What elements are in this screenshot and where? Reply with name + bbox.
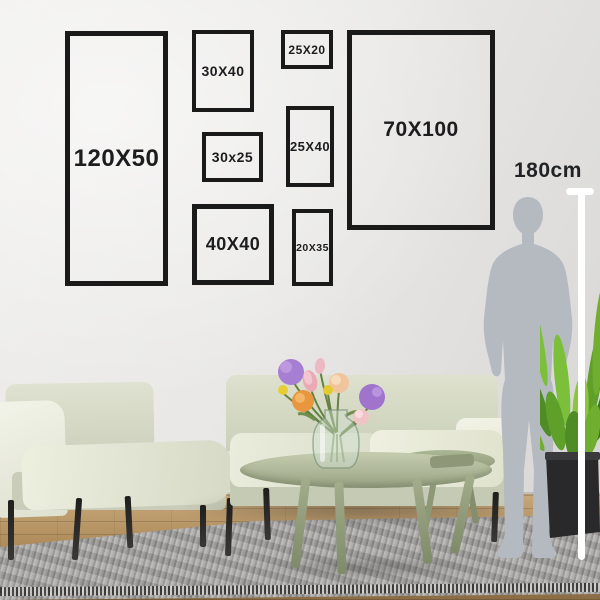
frame-size-label: 25X40 — [290, 139, 330, 154]
coffee-table-shadow — [250, 556, 490, 578]
size-frame-30x40: 30X40 — [192, 30, 254, 112]
flower-vase-arrangement — [255, 350, 400, 475]
armchair-leg — [8, 500, 14, 560]
size-frame-120x50: 120X50 — [65, 31, 168, 286]
frame-size-label: 40X40 — [206, 234, 261, 255]
size-frame-25x20: 25X20 — [281, 30, 333, 69]
frame-size-label: 30x25 — [212, 149, 253, 165]
size-frame-30x25: 30x25 — [202, 132, 263, 182]
frame-size-label: 30X40 — [202, 63, 245, 79]
size-frame-40x40: 40X40 — [192, 204, 274, 285]
sofa-leg — [200, 505, 206, 547]
size-frame-20x35: 20X35 — [292, 209, 333, 286]
height-label: 180cm — [514, 159, 600, 183]
frame-size-label: 25X20 — [288, 43, 325, 57]
frame-size-label: 120X50 — [74, 145, 160, 173]
height-ruler-line — [578, 190, 585, 560]
frame-size-label: 20X35 — [296, 242, 329, 254]
size-guide-scene: 120X50 30X40 25X20 30x25 25X40 70X100 40… — [0, 0, 600, 600]
plant-pot — [545, 452, 600, 538]
size-frame-25x40: 25X40 — [286, 106, 334, 187]
glass-vase — [313, 410, 359, 468]
frame-size-label: 70X100 — [383, 118, 458, 142]
plant-leaves — [540, 285, 600, 459]
potted-plant — [540, 280, 600, 545]
